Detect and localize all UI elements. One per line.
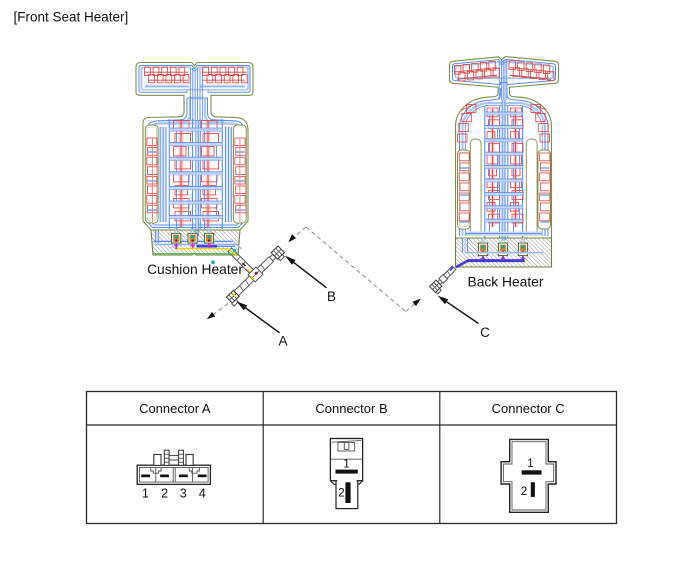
svg-text:3: 3 (180, 487, 187, 501)
svg-text:2: 2 (338, 488, 344, 500)
svg-text:Cushion Heater: Cushion Heater (147, 262, 243, 277)
svg-text:2: 2 (161, 487, 168, 501)
svg-text:C: C (480, 325, 490, 340)
svg-text:1: 1 (527, 458, 533, 470)
svg-text:B: B (327, 289, 336, 304)
svg-text:A: A (278, 334, 287, 349)
svg-text:[Front Seat Heater]: [Front Seat Heater] (14, 10, 129, 25)
svg-text:1: 1 (142, 487, 149, 501)
svg-text:2: 2 (521, 486, 527, 498)
svg-text:Connector C: Connector C (492, 401, 565, 416)
svg-text:Connector A: Connector A (139, 401, 211, 416)
svg-text:Connector B: Connector B (315, 401, 387, 416)
svg-text:Back Heater: Back Heater (468, 275, 544, 290)
svg-text:1: 1 (343, 459, 349, 471)
svg-text:4: 4 (199, 487, 206, 501)
